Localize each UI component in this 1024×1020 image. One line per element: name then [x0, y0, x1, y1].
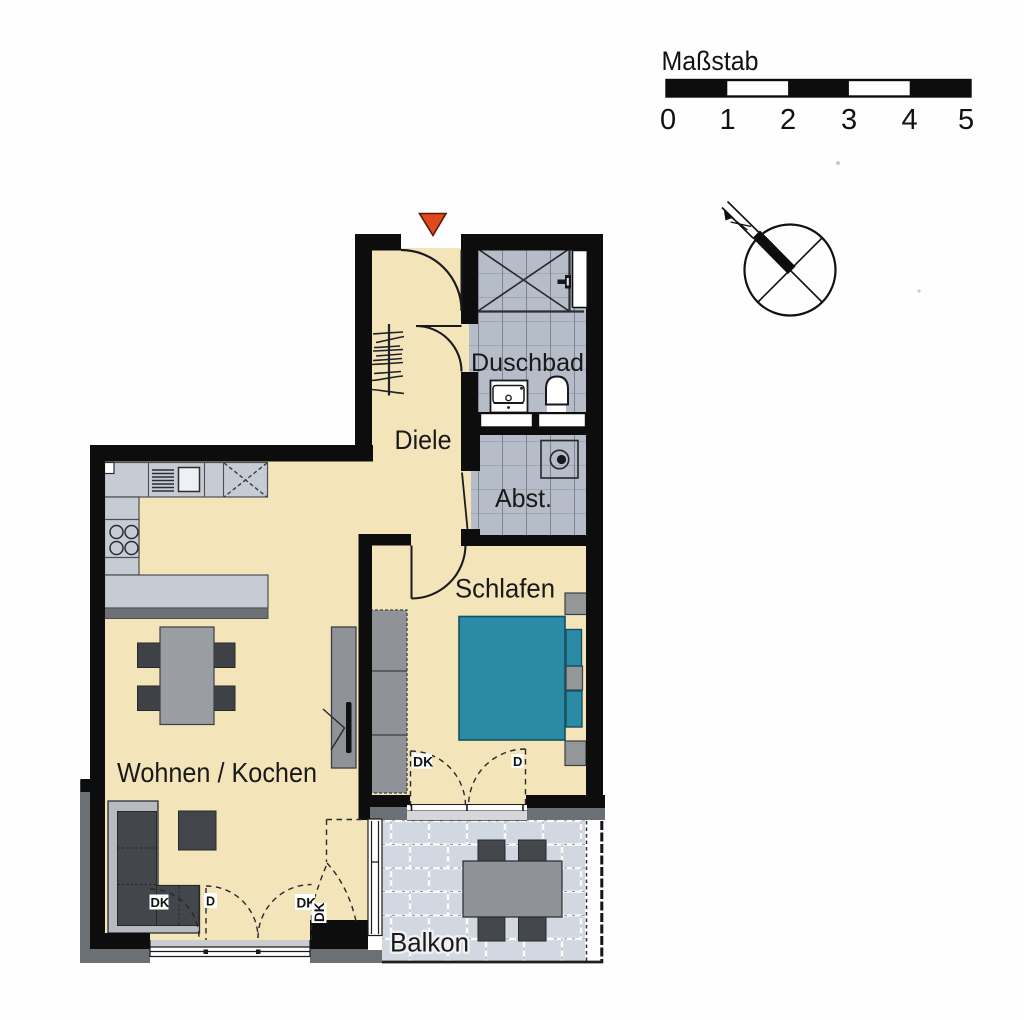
svg-text:Schlafen: Schlafen [455, 574, 555, 604]
svg-text:D: D [206, 895, 215, 909]
svg-text:2: 2 [780, 104, 796, 136]
svg-text:3: 3 [841, 104, 857, 136]
svg-text:Wohnen / Kochen: Wohnen / Kochen [117, 757, 317, 788]
svg-text:Duschbad: Duschbad [471, 349, 584, 377]
svg-text:DK: DK [312, 902, 327, 922]
svg-text:Abst.: Abst. [495, 483, 552, 513]
svg-text:Maßstab: Maßstab [662, 46, 759, 76]
svg-text:DK: DK [413, 754, 433, 770]
svg-text:1: 1 [720, 104, 736, 136]
svg-text:Balkon: Balkon [390, 928, 469, 958]
svg-text:Diele: Diele [395, 425, 452, 455]
svg-text:5: 5 [958, 104, 974, 136]
svg-text:D: D [513, 754, 522, 769]
svg-text:DK: DK [151, 895, 170, 910]
svg-text:0: 0 [660, 104, 676, 136]
svg-text:4: 4 [902, 104, 918, 136]
